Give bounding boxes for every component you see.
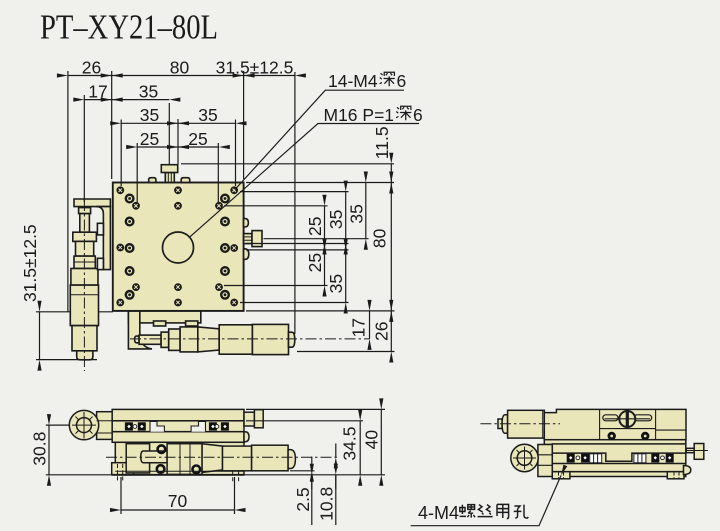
svg-text:17: 17 — [349, 318, 369, 337]
svg-text:25: 25 — [305, 217, 325, 236]
svg-text:35: 35 — [198, 105, 217, 125]
svg-text:35: 35 — [139, 81, 158, 101]
svg-text:26: 26 — [82, 57, 101, 77]
svg-text:25: 25 — [305, 253, 325, 272]
svg-text:70: 70 — [168, 491, 188, 511]
svg-text:2.5: 2.5 — [293, 487, 313, 511]
svg-text:35: 35 — [326, 274, 346, 293]
svg-text:30.8: 30.8 — [29, 432, 49, 466]
svg-text:31.5±12.5: 31.5±12.5 — [216, 57, 294, 77]
svg-text:31.5±12.5: 31.5±12.5 — [20, 224, 40, 302]
svg-text:26: 26 — [372, 322, 392, 341]
svg-text:35: 35 — [346, 204, 366, 223]
svg-text:35: 35 — [326, 210, 346, 229]
svg-text:17: 17 — [88, 81, 107, 101]
svg-text:25: 25 — [140, 129, 159, 149]
svg-text:80: 80 — [170, 57, 190, 77]
svg-text:10.8: 10.8 — [316, 487, 336, 521]
svg-text:6: 6 — [413, 105, 423, 125]
svg-text:PT–XY21–80L: PT–XY21–80L — [40, 8, 218, 47]
svg-text:11.5: 11.5 — [372, 126, 392, 159]
svg-text:80: 80 — [370, 228, 390, 248]
svg-text:4-M4: 4-M4 — [418, 503, 459, 523]
svg-text:40: 40 — [362, 430, 382, 450]
svg-text:14-M4: 14-M4 — [328, 71, 378, 91]
svg-text:6: 6 — [397, 71, 407, 91]
svg-text:25: 25 — [188, 129, 207, 149]
svg-text:34.5: 34.5 — [340, 427, 360, 461]
svg-text:M16 P=1: M16 P=1 — [324, 105, 395, 125]
svg-text:35: 35 — [140, 105, 159, 125]
